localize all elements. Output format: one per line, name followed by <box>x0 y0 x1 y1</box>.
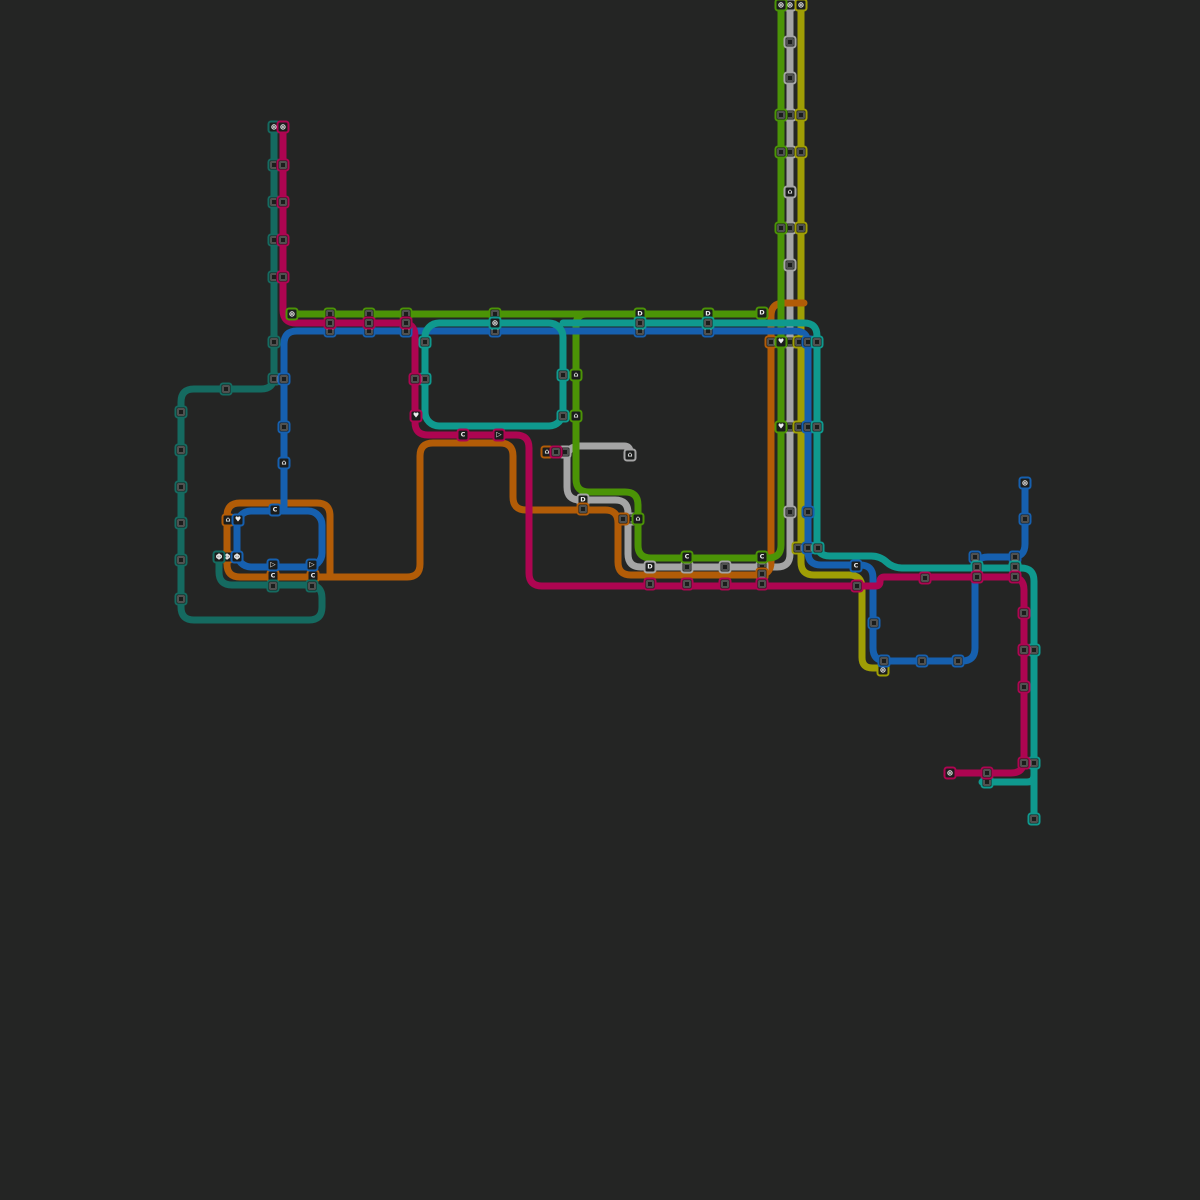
station-tri[interactable]: ▷ <box>306 559 319 572</box>
station-flower[interactable]: ⊛ <box>489 317 502 330</box>
green-branch-line[interactable] <box>576 5 781 558</box>
station-sq[interactable] <box>1019 513 1032 526</box>
station-sq[interactable] <box>952 655 965 668</box>
station-sq[interactable] <box>557 410 570 423</box>
station-sq[interactable] <box>175 554 188 567</box>
teal-bright-line-loop[interactable] <box>425 323 563 426</box>
station-C[interactable]: C <box>850 560 863 573</box>
station-sq[interactable] <box>795 109 808 122</box>
station-sq[interactable] <box>719 578 732 591</box>
station-flower[interactable]: ⊛ <box>944 767 957 780</box>
station-D[interactable]: D <box>644 561 657 574</box>
magenta-line[interactable] <box>283 127 1024 773</box>
station-sq[interactable] <box>634 317 647 330</box>
station-sq[interactable] <box>175 444 188 457</box>
teal-dark-line[interactable] <box>181 127 322 620</box>
station-sq[interactable] <box>175 481 188 494</box>
station-sq[interactable] <box>277 234 290 247</box>
station-home[interactable]: ⌂ <box>570 369 583 382</box>
station-sq[interactable] <box>1018 644 1031 657</box>
station-sq[interactable] <box>702 317 715 330</box>
station-sq[interactable] <box>802 506 815 519</box>
station-sq[interactable] <box>175 406 188 419</box>
gray-line[interactable] <box>567 5 790 567</box>
station-sq[interactable] <box>971 571 984 584</box>
station-flower[interactable]: ⊛ <box>775 0 788 12</box>
station-sq[interactable] <box>400 317 413 330</box>
station-sq[interactable] <box>363 317 376 330</box>
station-sq[interactable] <box>644 578 657 591</box>
station-sq[interactable] <box>784 506 797 519</box>
station-sq[interactable] <box>220 383 233 396</box>
station-sq[interactable] <box>811 421 824 434</box>
station-heart[interactable]: ♥ <box>410 410 423 423</box>
station-tri[interactable]: ▷ <box>267 559 280 572</box>
orange-line[interactable] <box>227 303 804 577</box>
station-flower[interactable]: ⊛ <box>286 308 299 321</box>
station-sq[interactable] <box>916 655 929 668</box>
station-home[interactable]: ⌂ <box>570 410 583 423</box>
station-home[interactable]: ⌂ <box>784 186 797 199</box>
station-sq[interactable] <box>795 146 808 159</box>
station-sq[interactable] <box>775 109 788 122</box>
station-sq[interactable] <box>795 222 808 235</box>
station-sq[interactable] <box>557 369 570 382</box>
station-flower[interactable]: ⊛ <box>277 121 290 134</box>
station-sq[interactable] <box>784 36 797 49</box>
station-D[interactable]: D <box>756 307 769 320</box>
station-heart[interactable]: ♥ <box>775 336 788 349</box>
station-sq[interactable] <box>306 580 319 593</box>
station-sq[interactable] <box>277 159 290 172</box>
station-phi[interactable]: Φ <box>213 551 226 564</box>
station-tri[interactable]: ▷ <box>493 429 506 442</box>
station-sq[interactable] <box>1028 813 1041 826</box>
station-sq[interactable] <box>981 767 994 780</box>
station-sq[interactable] <box>784 259 797 272</box>
station-sq[interactable] <box>267 580 280 593</box>
station-sq[interactable] <box>719 561 732 574</box>
station-sq[interactable] <box>175 593 188 606</box>
station-heart[interactable]: ♥ <box>232 514 245 527</box>
station-C[interactable]: C <box>681 551 694 564</box>
transit-map-canvas: ⊛⌂DD⌂⊛⊛⌂CCΦ⌂⊛♥♥CC⌂⌂⌂⊛DDD⊛Φ⊛C⌂C♥Φ▷▷⊛⊛♥C▷⊛ <box>0 0 1200 1200</box>
station-sq[interactable] <box>1009 571 1022 584</box>
station-sq[interactable] <box>175 517 188 530</box>
station-home[interactable]: ⌂ <box>278 457 291 470</box>
station-phi[interactable]: Φ <box>231 551 244 564</box>
station-sq[interactable] <box>681 578 694 591</box>
station-sq[interactable] <box>324 317 337 330</box>
station-sq[interactable] <box>811 336 824 349</box>
station-sq[interactable] <box>419 336 432 349</box>
station-sq[interactable] <box>277 271 290 284</box>
station-sq[interactable] <box>277 196 290 209</box>
station-sq[interactable] <box>268 336 281 349</box>
station-C[interactable]: C <box>457 429 470 442</box>
station-sq[interactable] <box>1018 681 1031 694</box>
station-flower[interactable]: ⊛ <box>795 0 808 12</box>
station-sq[interactable] <box>577 503 590 516</box>
station-sq[interactable] <box>756 578 769 591</box>
station-heart[interactable]: ♥ <box>775 421 788 434</box>
blue-line[interactable] <box>284 331 1025 661</box>
station-sq[interactable] <box>550 446 563 459</box>
station-sq[interactable] <box>1018 757 1031 770</box>
station-sq[interactable] <box>278 421 291 434</box>
station-sq[interactable] <box>617 513 630 526</box>
station-sq[interactable] <box>878 655 891 668</box>
station-sq[interactable] <box>851 580 864 593</box>
station-sq[interactable] <box>775 146 788 159</box>
station-flower[interactable]: ⊛ <box>1019 477 1032 490</box>
station-C[interactable]: C <box>269 504 282 517</box>
station-sq[interactable] <box>919 572 932 585</box>
station-sq[interactable] <box>775 222 788 235</box>
station-sq[interactable] <box>812 542 825 555</box>
station-sq[interactable] <box>1018 607 1031 620</box>
station-sq[interactable] <box>868 617 881 630</box>
station-sq[interactable] <box>409 373 422 386</box>
station-sq[interactable] <box>784 72 797 85</box>
station-C[interactable]: C <box>756 551 769 564</box>
station-home[interactable]: ⌂ <box>632 513 645 526</box>
station-sq[interactable] <box>278 373 291 386</box>
station-home[interactable]: ⌂ <box>624 449 637 462</box>
